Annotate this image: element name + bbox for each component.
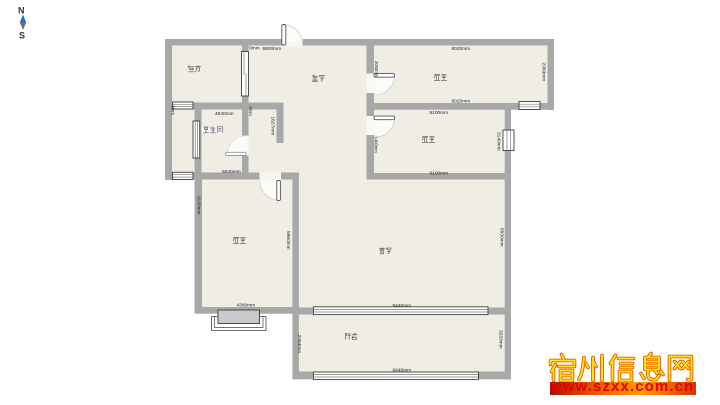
svg-text:1400mm: 1400mm <box>373 137 378 154</box>
svg-text:4940mm: 4940mm <box>215 111 234 117</box>
svg-text:2094mm: 2094mm <box>296 335 302 354</box>
svg-text:8020mm: 8020mm <box>452 99 471 105</box>
svg-text:6100mm: 6100mm <box>430 171 449 177</box>
svg-text:1627mm: 1627mm <box>270 117 276 136</box>
svg-text:8900mm: 8900mm <box>263 46 282 52</box>
svg-text:6500mm: 6500mm <box>499 228 505 247</box>
svg-text:0mm: 0mm <box>249 46 260 52</box>
svg-text:9100mm: 9100mm <box>196 196 202 215</box>
svg-text:9440mm: 9440mm <box>393 368 412 374</box>
svg-text:2060mm: 2060mm <box>541 63 547 82</box>
svg-text:2060mm: 2060mm <box>374 61 379 78</box>
svg-text:S: S <box>19 31 25 41</box>
svg-text:5640mm: 5640mm <box>222 169 241 175</box>
svg-text:0mm: 0mm <box>171 106 176 116</box>
svg-text:6100mm: 6100mm <box>430 110 449 116</box>
svg-text:3283mm: 3283mm <box>498 330 504 349</box>
svg-text:9440mm: 9440mm <box>393 303 412 309</box>
svg-text:5960mm: 5960mm <box>285 231 291 250</box>
svg-text:8020mm: 8020mm <box>452 46 471 52</box>
svg-text:0mm: 0mm <box>248 107 253 117</box>
svg-text:4360mm: 4360mm <box>237 303 256 309</box>
svg-text:N: N <box>18 6 25 16</box>
svg-text:3140mm: 3140mm <box>496 132 502 151</box>
